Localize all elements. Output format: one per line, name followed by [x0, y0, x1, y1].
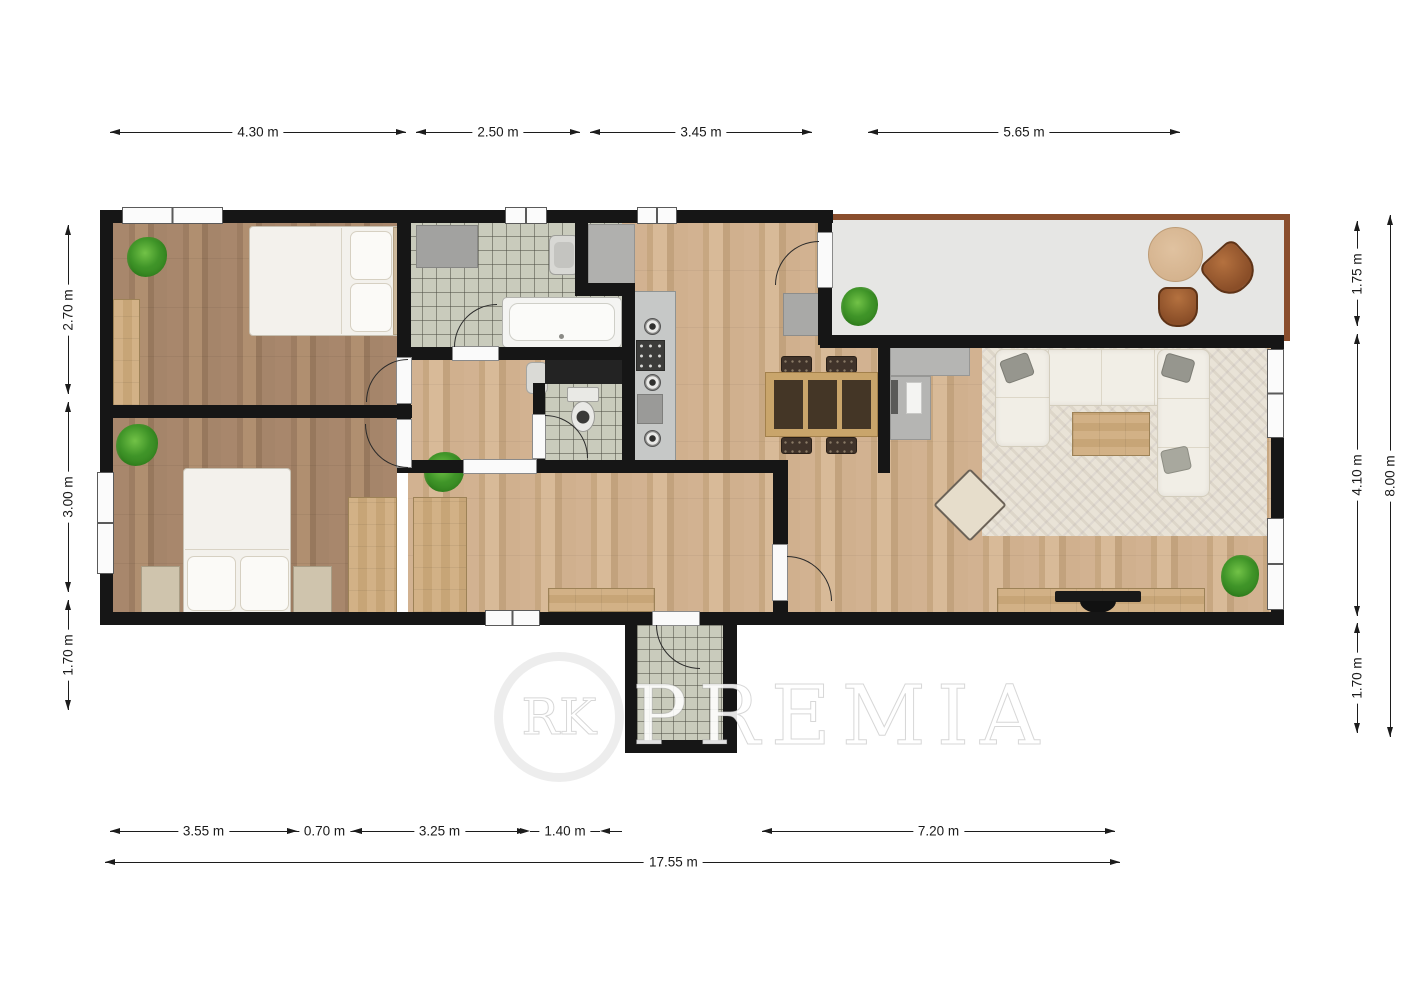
- dimension-arrowhead: [65, 402, 71, 412]
- dimension-label: 17.55 m: [644, 854, 703, 871]
- washing-machine: [416, 225, 478, 268]
- bathtub-drain: [559, 334, 564, 339]
- dimension-arrowhead: [287, 828, 297, 834]
- dimension-arrowhead: [110, 828, 120, 834]
- dimension-tail: [610, 831, 622, 832]
- kitchen-sink-round: [644, 318, 661, 335]
- watermark-logo-circle: RK: [494, 652, 624, 782]
- dimension-arrowhead: [600, 828, 610, 834]
- dimension-label: 0.70 m: [299, 823, 350, 840]
- bedroom2-nightstand: [293, 566, 332, 613]
- dimension-label: 3.25 m: [414, 823, 465, 840]
- terrace-chair: [1158, 287, 1198, 327]
- window-hall: [485, 610, 540, 626]
- desk-item: [891, 380, 898, 414]
- dimension-arrowhead: [1354, 221, 1360, 231]
- bedroom1-pillow: [350, 283, 392, 332]
- door-terrace-opening: [817, 232, 833, 288]
- wall-kitchen-left: [622, 283, 635, 473]
- dimension-arrowhead: [1354, 723, 1360, 733]
- wall-bedroom-divider: [100, 405, 412, 418]
- bedroom1-dresser: [113, 299, 140, 406]
- dimension-label: 1.70 m: [1349, 652, 1366, 703]
- dimension-label: 3.55 m: [178, 823, 229, 840]
- dimension-arrowhead: [1170, 129, 1180, 135]
- floorplan-canvas: RK PREMIA 4.30 m2.50 m3.45 m5.65 m2.70 m…: [0, 0, 1414, 1000]
- dining-chair: [781, 356, 812, 373]
- desk-papers: [906, 382, 922, 414]
- dimension-arrowhead: [570, 129, 580, 135]
- dimension-arrowhead: [1387, 727, 1393, 737]
- dining-chair: [826, 356, 857, 373]
- dimension-label: 1.70 m: [60, 629, 77, 680]
- dimension-arrowhead: [65, 700, 71, 710]
- dining-cabinet: [783, 293, 822, 336]
- hall-closet-cabinet: [588, 224, 635, 284]
- dimension-arrowhead: [65, 600, 71, 610]
- table-setting: [842, 380, 871, 429]
- wall-bathroom-bottom: [408, 347, 622, 360]
- dining-chair: [781, 437, 812, 454]
- dimension-arrowhead: [520, 828, 530, 834]
- dimension-label: 5.65 m: [998, 124, 1049, 141]
- toilet-tank: [567, 387, 599, 402]
- dimension-label: 1.40 m: [539, 823, 590, 840]
- desk-sideboard: [890, 344, 970, 376]
- hall-bench: [548, 588, 655, 612]
- window-bedroom2: [97, 472, 114, 574]
- dimension-label: 4.30 m: [232, 124, 283, 141]
- dimension-label: 7.20 m: [913, 823, 964, 840]
- window-kitchen: [637, 207, 677, 224]
- dimension-arrowhead: [762, 828, 772, 834]
- dining-table: [765, 372, 878, 437]
- window-bathroom: [505, 207, 547, 224]
- kitchen-cutting-board: [637, 394, 663, 424]
- bedroom1-duvet-fold: [341, 228, 342, 334]
- dimension-arrowhead: [590, 129, 600, 135]
- dimension-arrowhead: [802, 129, 812, 135]
- door-bathroom-opening: [452, 346, 499, 361]
- dark-console: [545, 358, 622, 384]
- dimension-arrowhead: [65, 582, 71, 592]
- wall-vestibule-right: [723, 625, 737, 753]
- dimension-arrowhead: [110, 129, 120, 135]
- dimension-arrowhead: [416, 129, 426, 135]
- bedroom2-duvet-fold: [185, 549, 289, 550]
- door-vestibule-opening: [652, 611, 700, 626]
- dimension-arrowhead: [105, 859, 115, 865]
- bedroom2-wardrobe: [348, 497, 397, 614]
- dimension-arrowhead: [65, 225, 71, 235]
- door-wc-opening: [532, 414, 546, 459]
- hall-wardrobe: [413, 497, 467, 613]
- dimension-label: 3.00 m: [60, 471, 77, 522]
- dimension-arrowhead: [1110, 859, 1120, 865]
- coffee-table: [1072, 412, 1150, 456]
- dimension-label: 1.75 m: [1349, 248, 1366, 299]
- dimension-arrowhead: [1105, 828, 1115, 834]
- dimension-tail: [275, 831, 287, 832]
- window-living-room: [1267, 349, 1284, 438]
- wall-vestibule-left: [625, 625, 637, 753]
- kitchen-burner: [644, 374, 661, 391]
- door-living-opening: [772, 544, 788, 601]
- wall-dining-living: [878, 335, 890, 473]
- bedroom2-pillow: [187, 556, 236, 611]
- dimension-label: 2.50 m: [472, 124, 523, 141]
- hall-passage-opening: [463, 459, 537, 474]
- window-living-room: [1267, 518, 1284, 610]
- dimension-label: 4.10 m: [1349, 449, 1366, 500]
- dimension-arrowhead: [1354, 606, 1360, 616]
- dimension-arrowhead: [1354, 316, 1360, 326]
- dimension-line: [105, 862, 1120, 863]
- wall-vestibule-bottom: [625, 740, 737, 753]
- watermark-logo-text: RK: [522, 688, 597, 746]
- dimension-arrowhead: [1387, 215, 1393, 225]
- dimension-tail: [508, 831, 520, 832]
- sink-basin: [554, 242, 574, 268]
- terrace-round-table: [1148, 227, 1203, 282]
- table-setting: [808, 380, 837, 429]
- bedroom2-nightstand: [141, 566, 180, 613]
- dimension-arrowhead: [65, 384, 71, 394]
- dimension-arrowhead: [868, 129, 878, 135]
- kitchen-cooktop: [636, 340, 665, 371]
- dimension-arrowhead: [352, 828, 362, 834]
- bedroom1-pillow: [350, 231, 392, 280]
- window-bedroom1: [122, 207, 223, 224]
- dimension-label: 3.45 m: [675, 124, 726, 141]
- dimension-arrowhead: [396, 129, 406, 135]
- dimension-label: 8.00 m: [1382, 450, 1399, 501]
- dimension-arrowhead: [1354, 623, 1360, 633]
- table-setting: [774, 380, 803, 429]
- watermark: RK PREMIA: [494, 652, 1050, 782]
- dining-chair: [826, 437, 857, 454]
- bathtub: [502, 297, 622, 348]
- kitchen-burner: [644, 430, 661, 447]
- dimension-label: 2.70 m: [60, 284, 77, 335]
- dimension-arrowhead: [1354, 334, 1360, 344]
- bedroom2-pillow: [240, 556, 289, 611]
